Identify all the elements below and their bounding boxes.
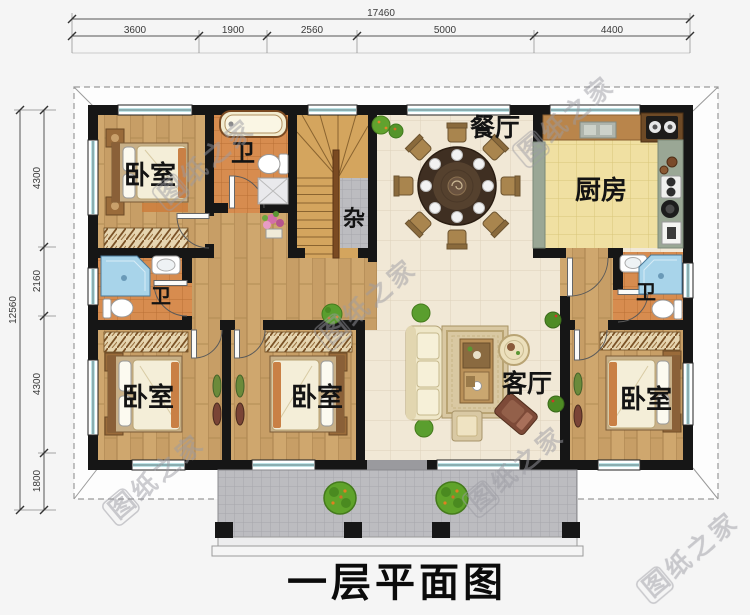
window-stairwell-top [308, 105, 357, 115]
dim-top-total: 17460 [367, 8, 395, 19]
dim-top-seg-2: 2560 [301, 25, 324, 36]
sofa [406, 326, 442, 420]
side-table-round [499, 335, 529, 365]
porch-step-2 [212, 546, 583, 556]
label-bath-left: 卫 [151, 286, 171, 308]
dim-left-seg-3: 1800 [32, 469, 43, 492]
toilet-left-icon [103, 299, 133, 318]
vase-bl-1 [213, 375, 221, 397]
window-bath-right-right [683, 263, 693, 298]
plant-living-right-top [545, 312, 561, 328]
window-bath-left-left [88, 268, 98, 305]
window-bedroom-tl-top [118, 105, 192, 115]
label-bedroom-br: 卧室 [620, 384, 672, 414]
shower-left-icon [101, 256, 150, 296]
wardrobe-bedroom-bl [104, 332, 188, 352]
window-bedroom-tl-left [88, 140, 98, 215]
dim-left-total: 12560 [8, 296, 19, 324]
vase-bm-2 [236, 403, 244, 425]
label-bath-right: 卫 [636, 282, 656, 304]
window-bedroom-br-bottom [598, 460, 640, 470]
wardrobe-bedroom-br [600, 332, 680, 350]
floor-plan-drawing: 卧室 卫 杂 餐厅 厨房 卫 卫 卧室 卧室 卧室 客厅 17460 3600 … [0, 0, 750, 615]
dim-top-seg-4: 4400 [601, 25, 624, 36]
dim-left-seg-1: 2160 [32, 269, 43, 292]
wardrobe-bedroom-tl [104, 228, 188, 250]
window-bedroom-bm-bottom [252, 460, 315, 470]
dim-top-seg-0: 3600 [124, 25, 147, 36]
vase-br-1 [574, 373, 582, 395]
vase-br-2 [574, 405, 582, 427]
label-dining: 餐厅 [470, 114, 520, 142]
sink-left-icon [152, 256, 180, 274]
porch-step-1 [218, 537, 577, 546]
plant-living-right-bottom [548, 396, 564, 412]
vase-bl-2 [213, 403, 221, 425]
vase-bm-1 [236, 375, 244, 397]
plant-sofa-top [412, 304, 430, 322]
entrance-threshold [367, 460, 427, 470]
porch [212, 470, 583, 556]
toilet-right-icon [652, 300, 682, 319]
label-living: 客厅 [502, 369, 552, 398]
label-storage: 杂 [343, 206, 365, 231]
window-bedroom-br-right [683, 363, 693, 425]
plant-sofa-bottom [415, 419, 433, 437]
page-title: 一层平面图 [287, 561, 507, 605]
coffee-table [460, 339, 493, 403]
dim-left-seg-2: 4300 [32, 372, 43, 395]
toilet-top-icon [258, 154, 288, 174]
dim-left-seg-0: 4300 [32, 166, 43, 189]
dim-top-seg-1: 1900 [222, 25, 245, 36]
window-bedroom-bl-left [88, 360, 98, 435]
label-kitchen: 厨房 [575, 175, 627, 205]
floor-plan-page: 卧室 卫 杂 餐厅 厨房 卫 卫 卧室 卧室 卧室 客厅 17460 3600 … [0, 0, 750, 615]
shower-top-icon [258, 178, 288, 204]
footstool [452, 411, 482, 441]
dim-top-seg-3: 5000 [434, 25, 457, 36]
label-bedroom-bl: 卧室 [122, 382, 174, 412]
stove-icon [641, 113, 683, 142]
porch-bush-left [324, 482, 356, 514]
label-bedroom-bm: 卧室 [291, 382, 343, 412]
